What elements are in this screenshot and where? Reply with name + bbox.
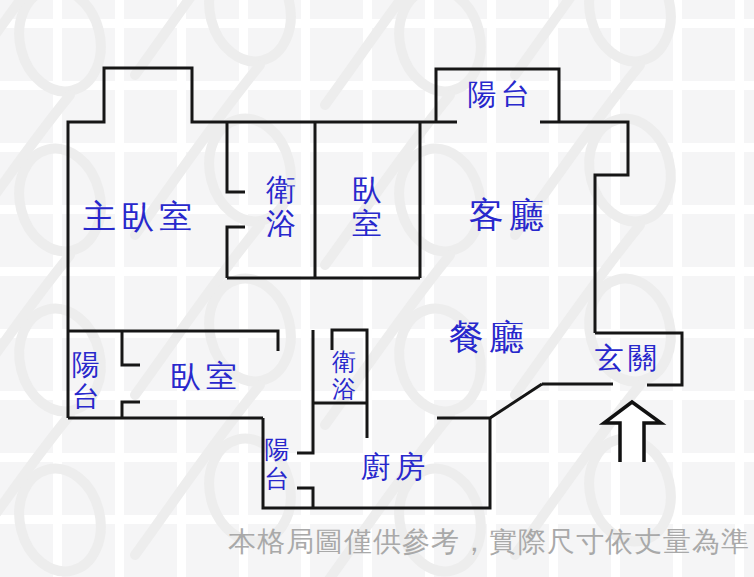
room-label-kitchen: 廚房 xyxy=(361,450,430,483)
room-label-balcony-bottom: 陽台 xyxy=(264,436,291,493)
room-label-master-bedroom: 主臥室 xyxy=(83,199,197,235)
disclaimer-text: 本格局圖僅供參考，實際尺寸依丈量為準 xyxy=(228,523,750,561)
room-label-bedroom-lower: 臥室 xyxy=(170,360,241,394)
room-label-bathroom-master: 衛浴 xyxy=(265,173,297,241)
room-label-living-room: 客廳 xyxy=(469,197,550,236)
floor-plan-walls xyxy=(0,0,754,577)
wall-master-bath-block xyxy=(227,122,420,278)
wall-kitchen-diagonal xyxy=(437,384,542,418)
wall-master-bedroom-bottom xyxy=(68,331,278,351)
room-label-balcony-top: 陽台 xyxy=(468,79,535,111)
room-label-bathroom-small: 衛浴 xyxy=(331,349,357,404)
entrance-arrow-icon xyxy=(604,402,661,462)
wall-balcony-left-divider xyxy=(122,331,140,418)
floor-plan-canvas: 陽台 主臥室 衛浴 臥室 客廳 餐廳 玄關 陽台 臥室 衛浴 陽台 廚房 本格局… xyxy=(0,0,754,577)
room-label-entryway: 玄關 xyxy=(595,343,662,375)
room-label-bedroom-middle: 臥室 xyxy=(351,173,383,241)
wall-outline-right xyxy=(540,122,628,333)
room-label-dining-room: 餐廳 xyxy=(449,319,530,358)
room-label-balcony-left: 陽台 xyxy=(71,349,101,413)
